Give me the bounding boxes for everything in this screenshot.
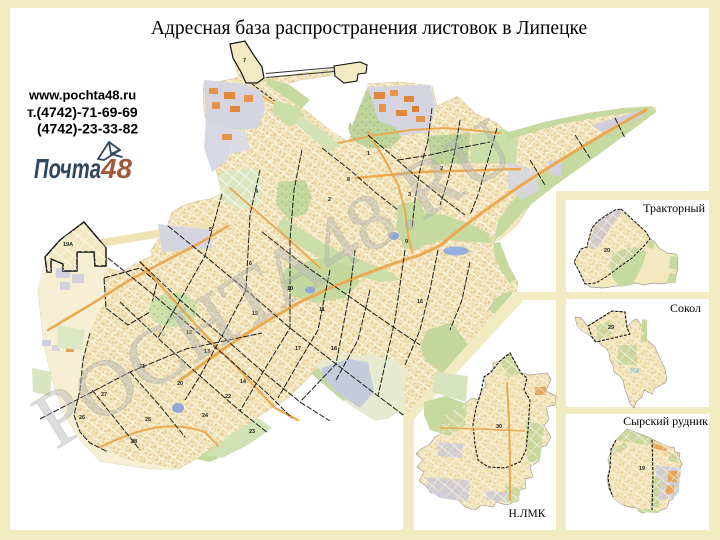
svg-text:Адресная база распространения: Адресная база распространения листовок в… <box>151 18 587 39</box>
svg-text:Сокол: Сокол <box>670 301 701 315</box>
svg-text:17: 17 <box>295 346 301 352</box>
svg-text:7: 7 <box>243 58 246 64</box>
svg-text:23: 23 <box>249 429 255 435</box>
svg-text:19: 19 <box>639 466 645 472</box>
svg-text:www.pochta48.ru: www.pochta48.ru <box>28 88 136 103</box>
svg-text:20: 20 <box>604 248 610 254</box>
svg-text:28: 28 <box>131 439 137 445</box>
svg-text:1: 1 <box>367 151 370 157</box>
svg-text:(4742)-23-33-82: (4742)-23-33-82 <box>37 121 138 137</box>
svg-text:30: 30 <box>496 424 502 430</box>
svg-text:24: 24 <box>202 413 209 419</box>
svg-text:Н.ЛМК: Н.ЛМК <box>509 508 546 520</box>
svg-text:22: 22 <box>225 394 231 400</box>
svg-text:Тракторный: Тракторный <box>643 201 705 215</box>
svg-text:29: 29 <box>608 325 614 331</box>
svg-text:т.(4742)-71-69-69: т.(4742)-71-69-69 <box>27 104 138 120</box>
svg-text:Почта: Почта <box>34 153 101 184</box>
svg-text:11: 11 <box>319 307 325 313</box>
svg-text:18: 18 <box>331 346 337 352</box>
svg-text:19А: 19А <box>63 242 73 248</box>
svg-text:14: 14 <box>240 379 247 385</box>
svg-text:5: 5 <box>209 227 212 233</box>
svg-text:16: 16 <box>417 299 423 305</box>
svg-text:8: 8 <box>347 177 350 183</box>
svg-text:Сырский рудник: Сырский рудник <box>623 414 708 428</box>
svg-text:25: 25 <box>145 417 151 423</box>
